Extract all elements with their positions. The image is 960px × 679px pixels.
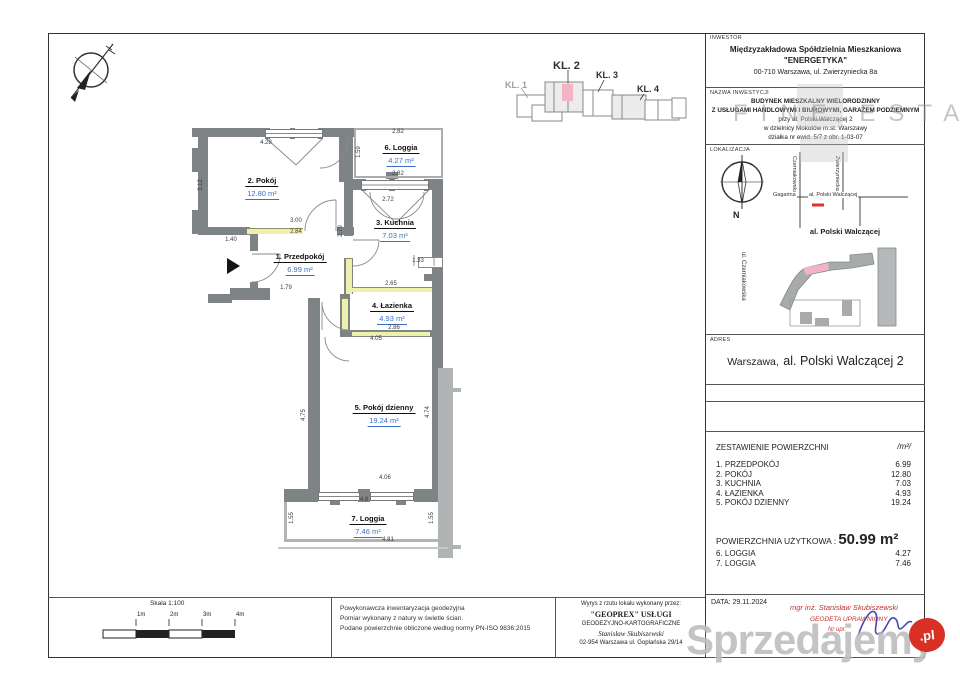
watermark-sprzedajemy: Sprzedajemy xyxy=(686,616,934,664)
scale-tick-label: 4m xyxy=(236,612,244,618)
dimension-label: 4.74 xyxy=(425,406,431,418)
dimension-label: 2.84 xyxy=(290,229,302,235)
surveyor-company: "GEOPREX" USŁUGI xyxy=(560,610,702,619)
wall-segment xyxy=(208,294,232,303)
scale-tick-label: 1m xyxy=(137,612,145,618)
surveyor-address: 02-954 Warszawa ul. Goplańska 29/14 xyxy=(560,640,702,646)
total-area-value: 50.99 m² xyxy=(838,531,898,548)
wall-segment xyxy=(192,148,198,172)
compass-n-label: N xyxy=(733,210,740,220)
inwestor-label: INWESTOR xyxy=(710,35,742,41)
area-row-value: 7.46 xyxy=(895,559,911,568)
footer-note-1: Powykonawcza inwentaryzacja geodezyjna xyxy=(340,604,465,614)
loggia7-outer-line xyxy=(278,547,448,549)
watermark-fine-estate: FINE ESTATE xyxy=(733,100,960,128)
dimension-label: 2.82 xyxy=(392,129,404,135)
dimension-label: 1.55 xyxy=(429,512,435,524)
area-row-name: 6. LOGGIA xyxy=(716,549,756,558)
wall-tick xyxy=(453,388,461,392)
bathroom-fixture xyxy=(424,274,441,281)
area-row-value: 6.99 xyxy=(895,460,911,469)
dimension-label: 4.28 xyxy=(260,140,272,146)
window xyxy=(370,492,414,501)
area-table-unit: /m²/ xyxy=(897,442,911,451)
wall-segment xyxy=(344,182,353,236)
area-table-title: ZESTAWIENIE POWIERZCHNI xyxy=(716,443,828,452)
area-row-value: 19.24 xyxy=(891,498,911,507)
area-row-value: 7.03 xyxy=(895,479,911,488)
wall-segment xyxy=(339,137,353,182)
area-row-name: 1. PRZEDPOKÓJ xyxy=(716,460,779,469)
map-caption: al. Polski Walczącej xyxy=(780,227,910,236)
window xyxy=(318,492,360,501)
window xyxy=(265,129,323,138)
nazwa-label: NAZWA INWESTYCJI xyxy=(710,90,769,96)
dimension-label: 2.79 xyxy=(338,225,344,237)
wall-tick xyxy=(453,545,461,549)
titleblock-lokalizacja: LOKALIZACJA xyxy=(705,145,925,335)
wall-segment xyxy=(230,288,270,300)
street-name-vertical-1: Czerniakowska xyxy=(791,156,797,193)
room-label-loggia7: 7. Loggia 7.46 m² xyxy=(350,512,387,538)
area-row-name: 4. ŁAZIENKA xyxy=(716,489,764,498)
wall-segment xyxy=(198,227,250,235)
room-label-pokoj: 2. Pokój 12.80 m² xyxy=(245,174,279,200)
dimension-label: 1.40 xyxy=(225,237,237,243)
area-row-name: 5. POKÓJ DZIENNY xyxy=(716,498,789,507)
key-plan-label-kl3: KL. 3 xyxy=(596,70,618,80)
titleblock-empty-row-1 xyxy=(705,385,925,402)
dimension-label: 2.82 xyxy=(392,171,404,177)
lokalizacja-label: LOKALIZACJA xyxy=(710,147,750,153)
wall-segment xyxy=(322,128,355,137)
titleblock-empty-row-2 xyxy=(705,402,925,432)
footer-scale-cell xyxy=(48,597,332,658)
surveyor-line3: GEODEZYJNO-KARTOGRAFICZNE xyxy=(560,621,702,627)
area-row-value: 12.80 xyxy=(891,470,911,479)
titleblock-adres: ADRES Warszawa, al. Polski Walczącej 2 xyxy=(705,335,925,385)
street-name-horizontal: al. Polski Walczącej xyxy=(808,192,858,198)
key-plan-label-kl1: KL. 1 xyxy=(505,80,527,90)
room-label-pokoj-dzienny: 5. Pokój dzienny 19.24 m² xyxy=(353,401,416,427)
inwestor-name2: "ENERGETYKA" xyxy=(784,56,847,65)
adres-label: ADRES xyxy=(710,337,730,343)
wall-segment xyxy=(284,489,318,502)
stamp-surveyor-name: mgr inż. Stanisław Skubiszewski xyxy=(790,603,898,612)
loggia7-wall xyxy=(284,502,287,542)
dimension-label: 3.00 xyxy=(290,218,302,224)
dimension-label: 4.06 xyxy=(379,475,391,481)
dimension-label: 4.05 xyxy=(370,336,382,342)
site-street-label: ul. Czerniakowska xyxy=(740,252,746,301)
date-label: DATA: 29.11.2024 xyxy=(711,599,767,606)
adres-city: Warszawa, xyxy=(727,356,779,368)
dimension-label: 2.86 xyxy=(388,325,400,331)
footer-note-3: Podane powierzchnie obliczone według nor… xyxy=(340,624,530,634)
surveyor-name: Stanisław Skubiszewski xyxy=(560,630,702,638)
dimension-label: 1.79 xyxy=(280,285,292,291)
window xyxy=(361,180,429,190)
wall-segment xyxy=(308,298,320,498)
dimension-label: 4.8 xyxy=(360,497,368,503)
dimension-label: 2.65 xyxy=(385,281,397,287)
highlight-wall xyxy=(352,331,430,336)
floor-plan-sheet: KL. 1 KL. 2 KL. 3 KL. 4 xyxy=(0,0,960,679)
dimension-label: 4.75 xyxy=(301,409,307,421)
area-row-value: 4.27 xyxy=(895,549,911,558)
key-plan-label-kl2: KL. 2 xyxy=(553,60,580,72)
dimension-label: 1.55 xyxy=(289,512,295,524)
inwestor-name: Międzyzakładowa Spółdzielnia Mieszkaniow… xyxy=(730,45,901,54)
room-label-loggia6: 6. Loggia 4.27 m² xyxy=(383,141,420,167)
street-name-horizontal-left: Gagarina xyxy=(772,192,797,198)
wall-segment xyxy=(250,232,258,251)
total-area-label: POWIERZCHNIA UŻYTKOWA : xyxy=(716,536,836,546)
room-label-lazienka: 4. Łazienka 4.93 m² xyxy=(370,299,414,325)
scale-tick-label: 2m xyxy=(170,612,178,618)
loggia7-wall xyxy=(284,539,441,542)
scale-title: Skala 1:100 xyxy=(150,600,184,607)
area-row-name: 7. LOGGIA xyxy=(716,559,756,568)
area-row-value: 4.93 xyxy=(895,489,911,498)
watermark-block xyxy=(800,136,848,162)
loggia-outer-wall xyxy=(438,368,453,558)
dimension-label: 1.33 xyxy=(412,258,424,264)
highlight-wall xyxy=(342,298,348,330)
room-label-przedpokoj: 1. Przedpokój 6.99 m² xyxy=(274,250,327,276)
footer-note-2: Pomiar wykonany z natury w świetle ścian… xyxy=(340,614,463,624)
adres-street: al. Polski Walczącej 2 xyxy=(783,354,903,368)
surveyor-line1: Wyrys z rzutu lokalu wykonany przez: xyxy=(560,601,702,607)
titleblock-area-table: ZESTAWIENIE POWIERZCHNI /m²/ 1. PRZEDPOK… xyxy=(705,432,925,595)
dimension-label: 4.81 xyxy=(382,537,394,543)
scale-tick-label: 3m xyxy=(203,612,211,618)
dimension-label: 3.12 xyxy=(198,179,204,191)
dimension-label: 2.72 xyxy=(382,197,394,203)
area-row-name: 2. POKÓJ xyxy=(716,470,752,479)
key-plan-label-kl4: KL. 4 xyxy=(637,84,659,94)
dimension-label: 1.59 xyxy=(356,146,362,158)
room-label-kuchnia: 3. Kuchnia 7.03 m² xyxy=(374,216,416,242)
area-row-name: 3. KUCHNIA xyxy=(716,479,761,488)
inwestor-address: 00-710 Warszawa, ul. Zwierzyniecka 8a xyxy=(754,69,877,76)
highlight-wall xyxy=(352,287,432,292)
titleblock-inwestor: INWESTOR Międzyzakładowa Spółdzielnia Mi… xyxy=(705,33,925,88)
